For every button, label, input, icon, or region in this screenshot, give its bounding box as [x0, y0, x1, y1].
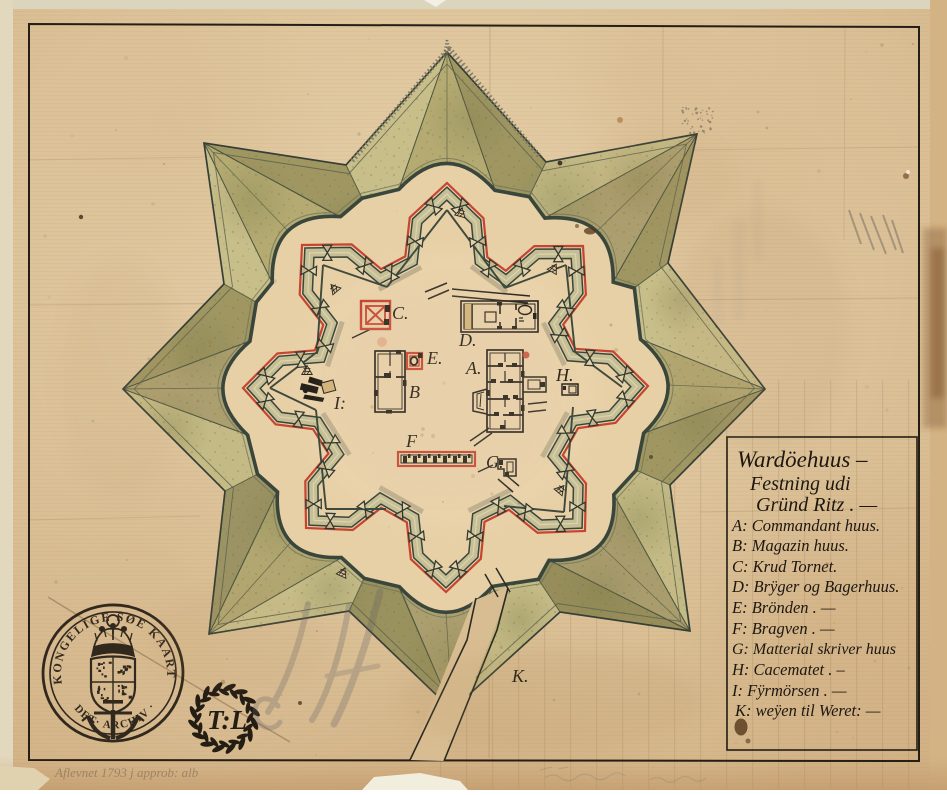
svg-text:I: Fÿrmörsen . —: I: Fÿrmörsen . —	[731, 681, 847, 700]
svg-text:Wardöehuus –: Wardöehuus –	[737, 447, 868, 472]
svg-text:F: Bragven . —: F: Bragven . —	[731, 619, 835, 638]
svg-text:D: Brÿger og Bagerhuus.: D: Brÿger og Bagerhuus.	[731, 577, 899, 596]
svg-text:G: Matterial skriver huus: G: Matterial skriver huus	[732, 641, 896, 658]
svg-text:K: weÿen til Weret: —: K: weÿen til Weret: —	[734, 701, 881, 720]
svg-text:T:L: T:L	[207, 705, 247, 735]
svg-text:Gründ Ritz . —: Gründ Ritz . —	[756, 494, 877, 516]
svg-text:E: Brönden . —: E: Brönden . —	[731, 598, 836, 617]
svg-text:A: Commandant huus.: A: Commandant huus.	[731, 516, 880, 535]
svg-text:B: Magazin huus.: B: Magazin huus.	[732, 536, 849, 555]
svg-text:H: Cacematet . –: H: Cacematet . –	[731, 660, 845, 679]
svg-text:Festning udi: Festning udi	[749, 473, 851, 495]
svg-text:Aflevnet 1793 j approb: alb: Aflevnet 1793 j approb: alb	[54, 765, 199, 780]
svg-text:C: Krud Tornet.: C: Krud Tornet.	[732, 557, 837, 576]
